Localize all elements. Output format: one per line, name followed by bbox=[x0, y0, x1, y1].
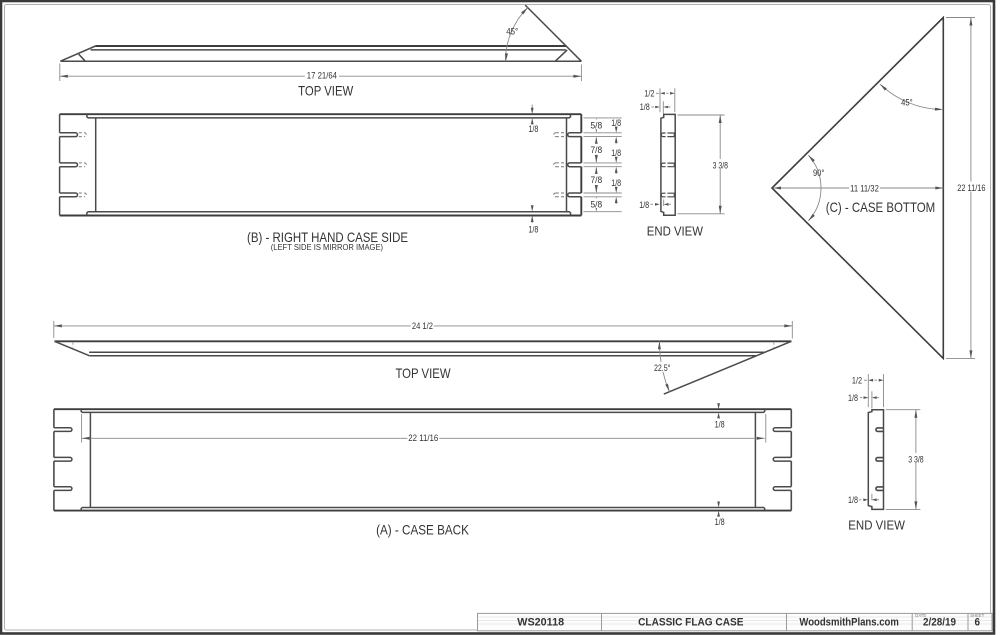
svg-text:1/2: 1/2 bbox=[644, 89, 654, 99]
svg-text:1/8: 1/8 bbox=[848, 393, 858, 403]
svg-text:11 11/32: 11 11/32 bbox=[850, 183, 879, 193]
svg-text:22 11/16: 22 11/16 bbox=[957, 183, 985, 193]
svg-text:1/8: 1/8 bbox=[715, 420, 725, 430]
svg-text:END VIEW: END VIEW bbox=[647, 224, 704, 239]
svg-text:1/8: 1/8 bbox=[611, 148, 621, 158]
svg-text:CLASSIC FLAG CASE: CLASSIC FLAG CASE bbox=[638, 616, 743, 628]
svg-text:END VIEW: END VIEW bbox=[848, 518, 905, 533]
svg-text:17 21/64: 17 21/64 bbox=[307, 70, 337, 80]
svg-text:WS20118: WS20118 bbox=[517, 616, 564, 628]
svg-text:(LEFT SIDE IS MIRROR IMAGE): (LEFT SIDE IS MIRROR IMAGE) bbox=[271, 242, 384, 252]
svg-text:3 3/8: 3 3/8 bbox=[713, 160, 728, 170]
svg-text:45°: 45° bbox=[506, 27, 518, 37]
svg-text:1/2: 1/2 bbox=[852, 375, 862, 385]
svg-text:1/8: 1/8 bbox=[715, 517, 725, 527]
svg-text:5/8: 5/8 bbox=[590, 200, 602, 210]
svg-text:22 11/16: 22 11/16 bbox=[408, 433, 438, 443]
svg-text:24 1/2: 24 1/2 bbox=[412, 321, 433, 331]
svg-text:(C) - CASE BOTTOM: (C) - CASE BOTTOM bbox=[826, 199, 936, 215]
svg-text:1/8: 1/8 bbox=[639, 200, 649, 210]
svg-text:TOP VIEW: TOP VIEW bbox=[395, 365, 451, 381]
svg-text:7/8: 7/8 bbox=[590, 145, 602, 155]
svg-text:WoodsmithPlans.com: WoodsmithPlans.com bbox=[799, 616, 899, 628]
svg-text:3 3/8: 3 3/8 bbox=[908, 454, 923, 464]
svg-text:1/8: 1/8 bbox=[640, 102, 650, 112]
svg-text:45°: 45° bbox=[901, 97, 913, 107]
svg-text:6: 6 bbox=[975, 617, 981, 629]
svg-text:TOP VIEW: TOP VIEW bbox=[298, 83, 354, 99]
svg-text:(A) - CASE BACK: (A) - CASE BACK bbox=[376, 522, 469, 538]
svg-text:90°: 90° bbox=[813, 168, 825, 178]
svg-text:1/8: 1/8 bbox=[528, 224, 538, 234]
svg-text:1/8: 1/8 bbox=[848, 495, 858, 505]
svg-text:1/8: 1/8 bbox=[528, 124, 538, 134]
svg-text:5/8: 5/8 bbox=[590, 121, 602, 131]
svg-text:1/8: 1/8 bbox=[611, 118, 621, 128]
svg-text:2/28/19: 2/28/19 bbox=[923, 617, 956, 629]
svg-text:1/8: 1/8 bbox=[611, 178, 621, 188]
svg-text:7/8: 7/8 bbox=[590, 175, 602, 185]
svg-text:22.5°: 22.5° bbox=[654, 363, 671, 373]
